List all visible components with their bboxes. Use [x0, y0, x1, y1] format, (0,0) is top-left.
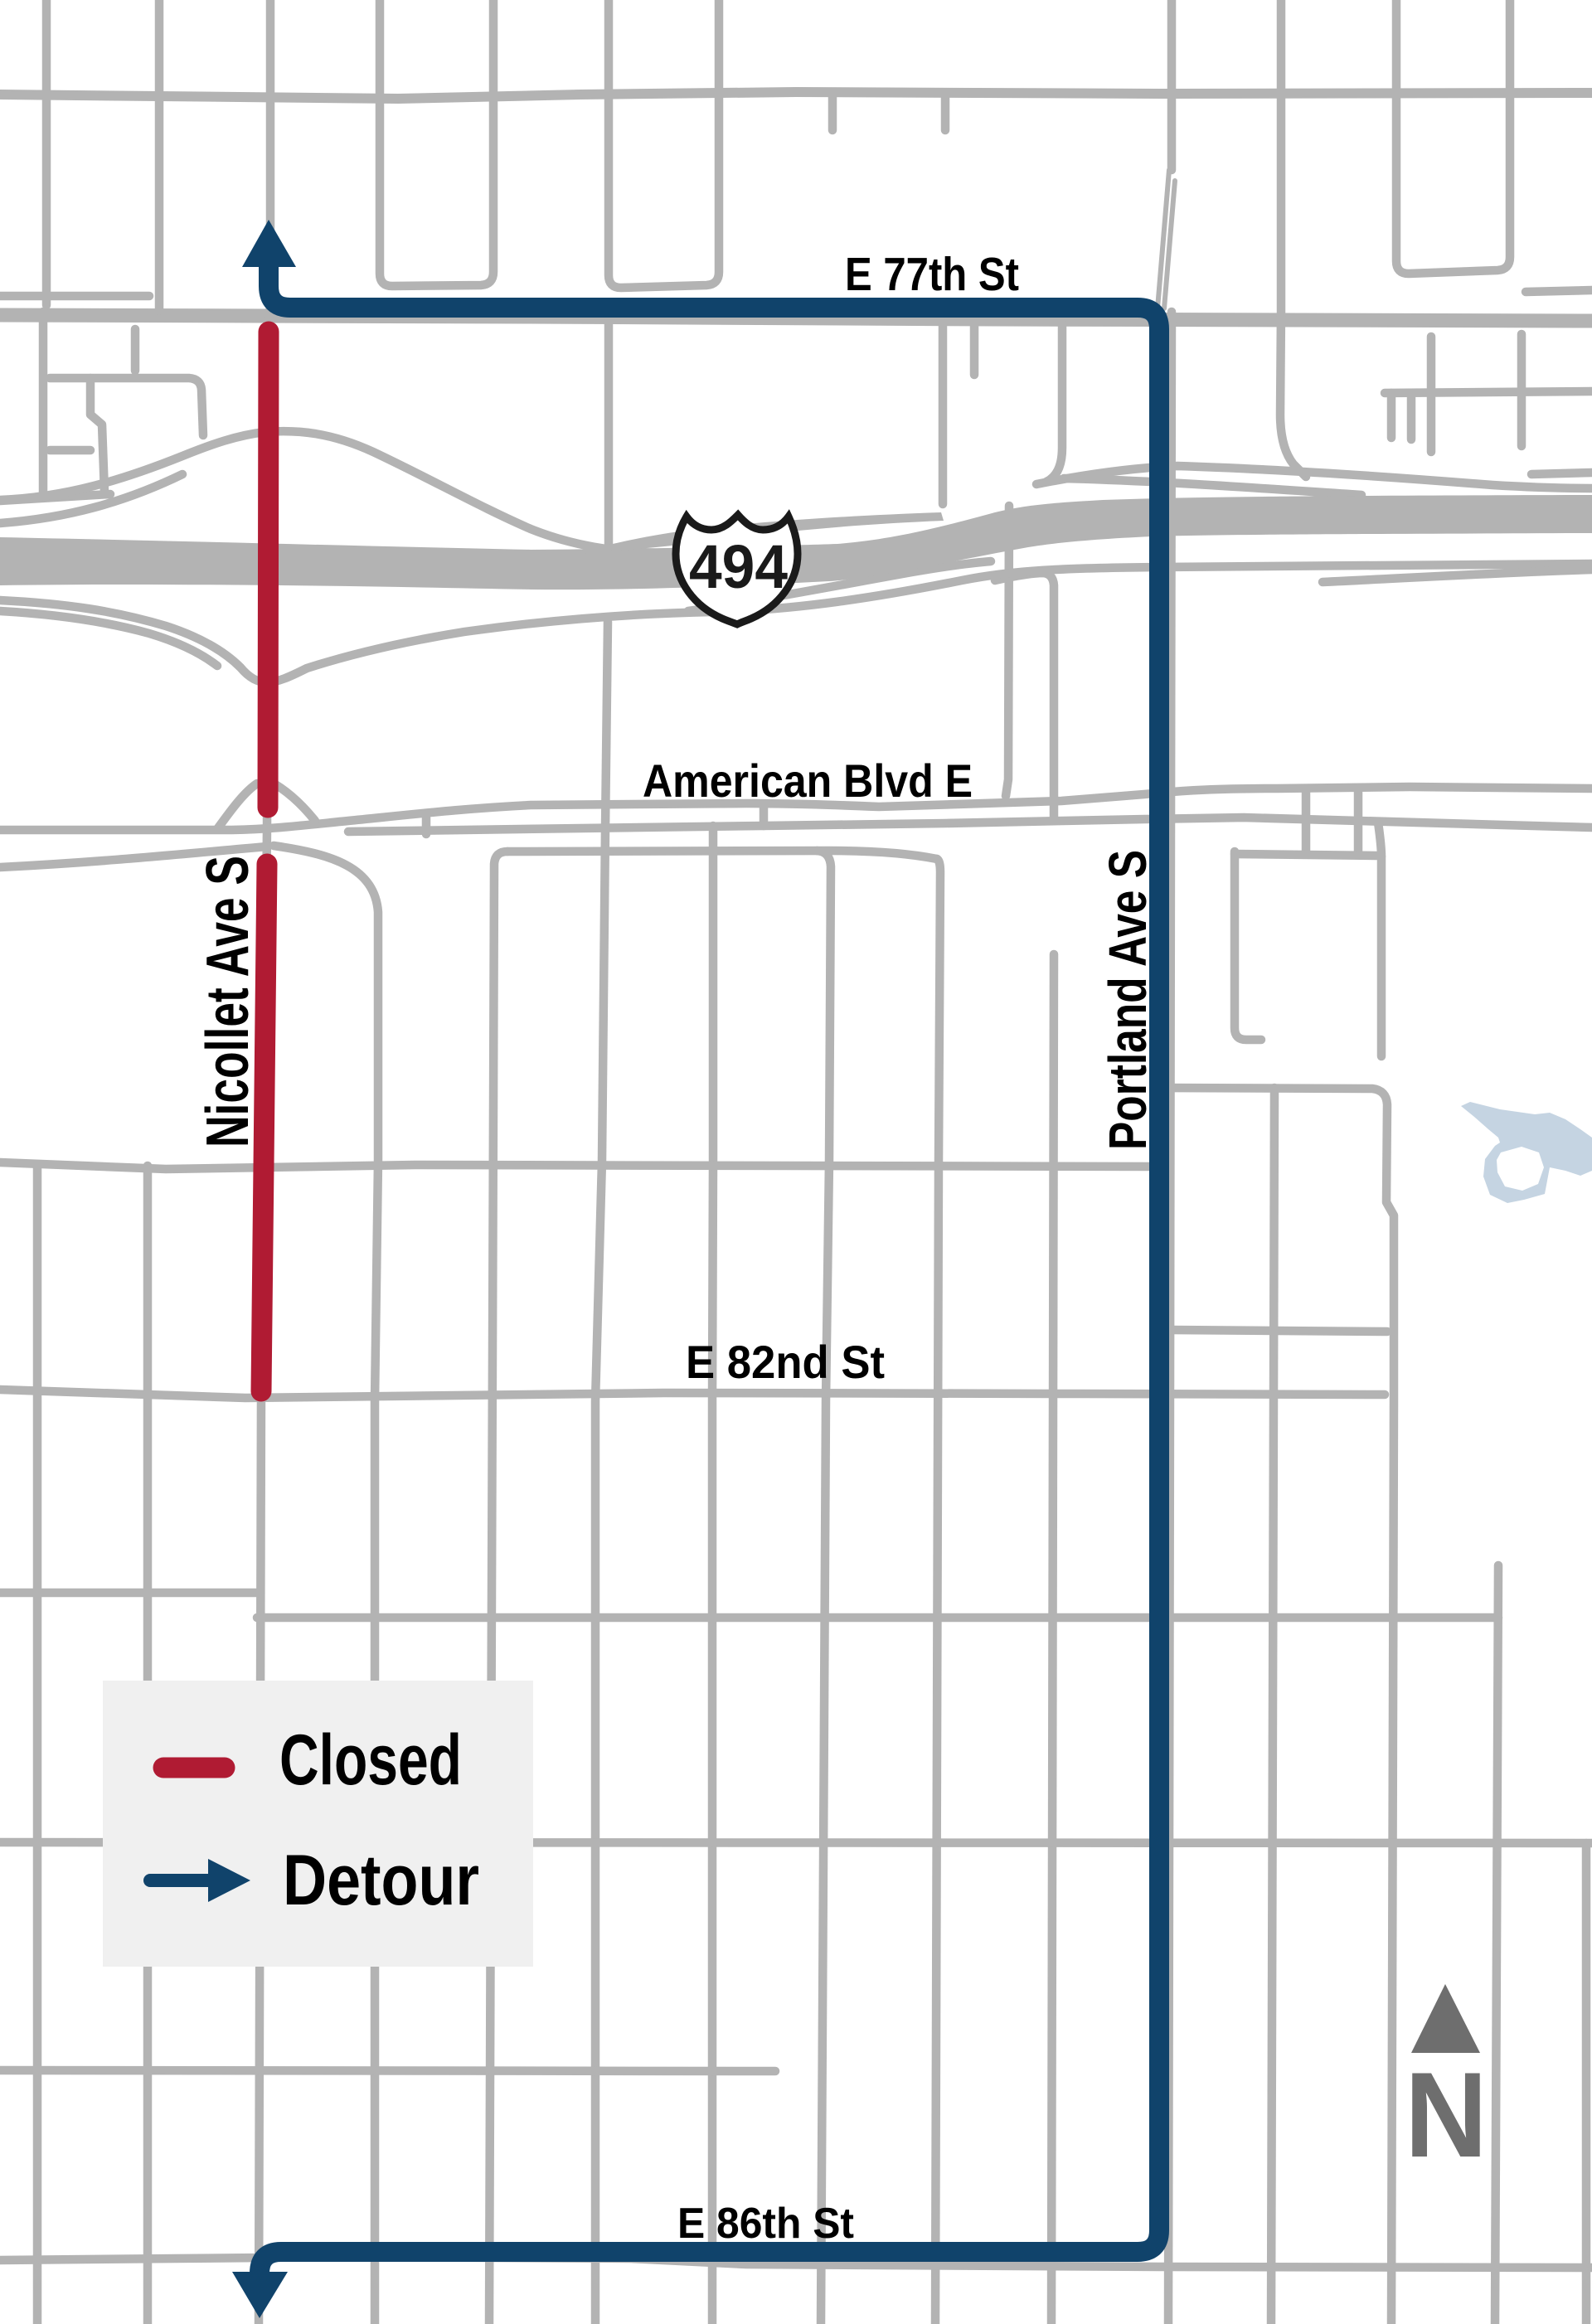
svg-text:Detour: Detour — [283, 1841, 479, 1920]
svg-text:Closed: Closed — [279, 1720, 462, 1800]
svg-text:E 77th St: E 77th St — [845, 248, 1019, 301]
svg-text:E 86th St: E 86th St — [677, 2200, 854, 2248]
svg-text:Portland Ave S: Portland Ave S — [1098, 850, 1158, 1150]
svg-text:Nicollet Ave S: Nicollet Ave S — [195, 856, 261, 1147]
svg-text:American Blvd E: American Blvd E — [643, 754, 973, 807]
svg-text:E 82nd St: E 82nd St — [686, 1336, 885, 1388]
svg-text:N: N — [1405, 2047, 1488, 2182]
svg-text:494: 494 — [689, 532, 788, 601]
